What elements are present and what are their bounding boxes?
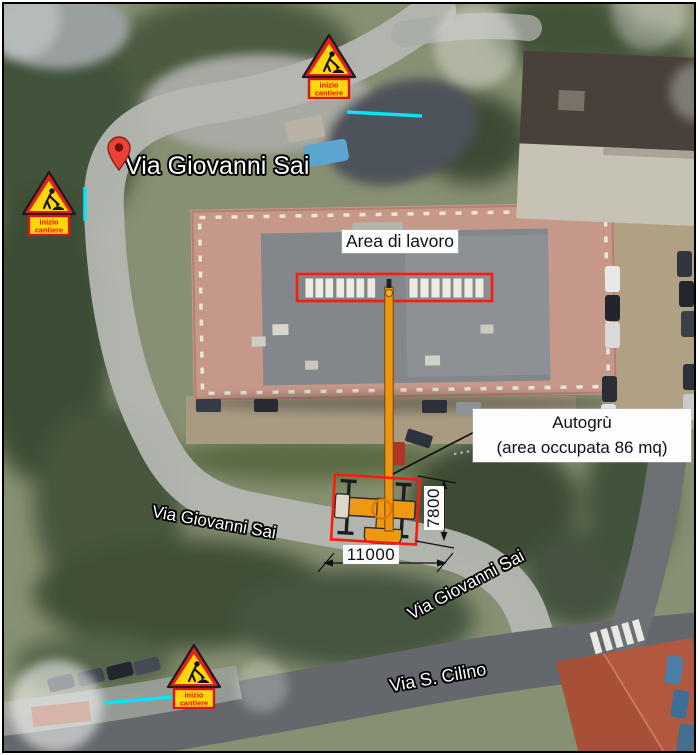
location-pin-icon [107,136,131,172]
roadworks-sign-north: inizio cantiere [301,33,357,104]
crane-label-line2: (area occupata 86 mq) [473,435,691,460]
cyan-marker-line-north [347,112,422,116]
sign-text-line2: cantiere [315,89,343,98]
dimension-11000-text: 11000 [343,545,399,564]
crane-truck [333,479,417,546]
roadworks-sign-south: inizio cantiere [166,643,222,714]
work-area-rectangle [297,274,492,301]
sign-text-line2: cantiere [35,226,63,235]
crane-cab [334,494,349,519]
satellite-map: Via Giovanni Sai Via Giovanni Sai Via Gi… [4,4,694,751]
work-area-label: Area di lavoro [342,230,458,253]
sign-text-line2: cantiere [180,699,208,708]
roadworks-sign-west: inizio cantiere [21,170,77,241]
dimension-7800-text: 7800 [424,486,444,530]
crane-boom [385,279,393,531]
site-plan-image: Via Giovanni Sai Via Giovanni Sai Via Gi… [0,0,698,755]
crane-label-line1: Autogrù [473,410,691,435]
cyan-marker-line-south [104,697,173,703]
street-label-via-giovanni-sai-main: Via Giovanni Sai [125,152,309,181]
annotation-overlay [4,4,694,751]
crane-label: Autogrù (area occupata 86 mq) [473,409,691,462]
